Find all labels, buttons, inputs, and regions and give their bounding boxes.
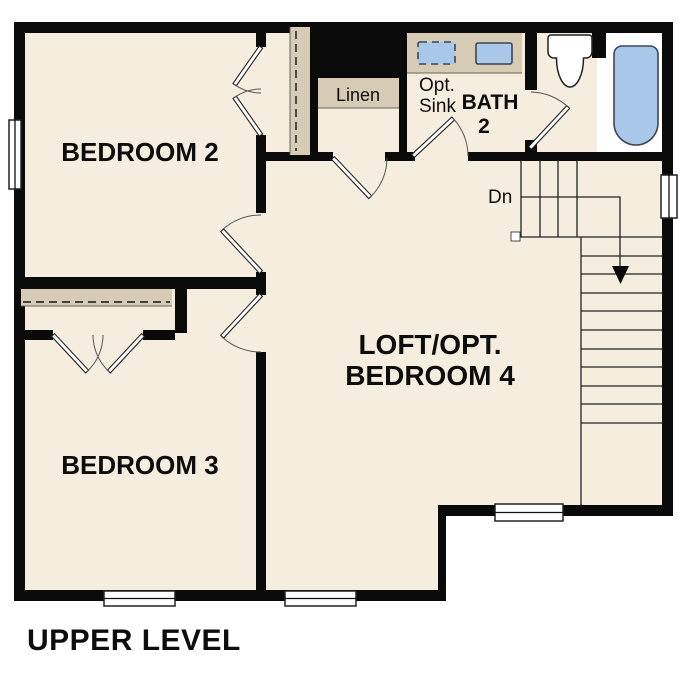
landing-notch — [511, 232, 520, 241]
wall-bottom — [14, 590, 446, 601]
bedroom2-window — [9, 120, 21, 189]
linen-label: Linen — [336, 85, 380, 105]
wall-linen-bath — [399, 78, 407, 158]
wall-bedroom-divider — [14, 277, 266, 289]
stairs-down-label: Dn — [488, 187, 512, 208]
loft-window-bottom — [495, 504, 563, 521]
floor-plan-page: BEDROOM 2 BEDROOM 3 LOFT/OPT. BEDROOM 4 … — [0, 0, 687, 687]
wall-b3closet-l — [21, 330, 53, 340]
landing-window — [661, 175, 677, 218]
opt-sink-label-line1: Opt. — [419, 75, 455, 96]
wall-b3closet-stub — [175, 289, 187, 333]
upper-level-floor-plan: BEDROOM 2 BEDROOM 3 LOFT/OPT. BEDROOM 4 … — [0, 0, 687, 687]
wall-b2-stub-top — [256, 27, 266, 47]
wall-tub-pillar — [592, 33, 606, 58]
plan-title: UPPER LEVEL — [27, 624, 241, 657]
loft-label-line2: BEDROOM 4 — [345, 360, 515, 391]
wall-b3-loft — [256, 352, 266, 592]
opt-sink-label-line2: Sink — [419, 96, 456, 117]
wall-hall-b — [385, 152, 415, 161]
wall-left — [14, 22, 25, 601]
bedroom2-label: BEDROOM 2 — [61, 137, 218, 167]
wall-chase — [310, 22, 407, 78]
wall-toilet — [525, 33, 537, 90]
bedroom3-window — [104, 591, 175, 606]
bedroom3-closet-shelf — [21, 289, 172, 306]
bedroom3-label: BEDROOM 3 — [61, 450, 218, 480]
bath-label-line1: BATH — [462, 91, 519, 114]
sink-fixture — [476, 43, 512, 64]
wall-step — [438, 505, 446, 601]
bath-label-line2: 2 — [478, 115, 490, 138]
wall-right — [662, 22, 673, 516]
wall-b3closet-r — [143, 330, 175, 340]
wall-hall-c — [468, 152, 673, 161]
loft-label-line1: LOFT/OPT. — [358, 329, 501, 360]
bedroom2-closet-shelf — [290, 27, 310, 155]
bathtub-fixture — [614, 46, 658, 145]
optional-sink-fixture — [418, 42, 455, 64]
loft-window-left — [285, 591, 356, 606]
wall-b2-mid — [256, 135, 266, 213]
